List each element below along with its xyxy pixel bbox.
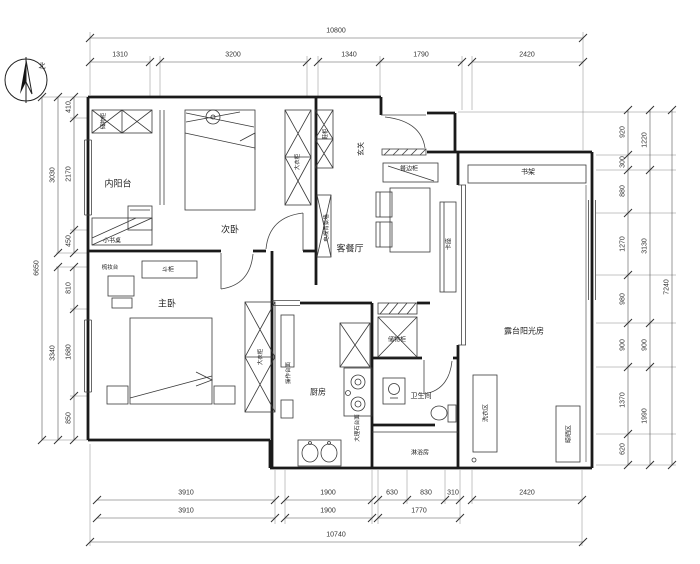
dim-left-total: 6650 <box>34 260 41 276</box>
dim-left-group-0: 3030 <box>50 167 57 183</box>
room-label-inner-balcony: 内阳台 <box>104 177 131 190</box>
room-label-living-dining: 客餐厅 <box>336 242 363 255</box>
bed-second-bedroom <box>185 110 255 210</box>
toilet <box>431 405 456 422</box>
dim-bottom-r1-3: 830 <box>420 490 432 497</box>
label-chest-drawers: 斗柜 <box>162 265 174 274</box>
dim-right-seg-6: 1370 <box>620 392 627 408</box>
dim-left-seg-3: 810 <box>66 282 73 294</box>
dim-right-seg-2: 880 <box>620 185 627 197</box>
dim-right-total: 7240 <box>664 279 671 295</box>
dim-top-seg-2: 1340 <box>341 52 357 59</box>
dim-right-group-0: 1220 <box>642 132 649 148</box>
kitchen-sink <box>298 440 341 466</box>
label-bench-seat: 卡座 <box>444 238 453 250</box>
dim-right-seg-7: 620 <box>620 443 627 455</box>
dim-bottom-r1-1: 1900 <box>320 490 336 497</box>
dim-bottom-r1-2: 630 <box>386 490 398 497</box>
label-storage-cabinet-kitchen: 储物柜 <box>388 335 406 344</box>
room-label-master-bedroom: 主卧 <box>158 297 176 310</box>
label-wardrobe-master: 大衣柜 <box>256 349 264 366</box>
dim-bottom-r1-5: 2420 <box>519 490 535 497</box>
label-work-counter: 操作台面 <box>284 362 292 384</box>
floor-plan-canvas: 北 10800 1310 3200 1340 1790 2420 3910 19… <box>0 0 700 564</box>
dim-left-group-1: 3340 <box>50 345 57 361</box>
dresser <box>108 276 134 308</box>
dining-table <box>376 188 430 252</box>
dim-right-group-2: 900 <box>642 339 649 351</box>
dim-top-seg-4: 2420 <box>519 52 535 59</box>
compass-north-label: 北 <box>39 61 46 71</box>
door-master-bedroom <box>221 253 253 289</box>
dim-right-group-1: 3130 <box>642 238 649 254</box>
dim-bottom-r1-0: 3910 <box>178 490 194 497</box>
storage-cabinet-kitchen <box>378 303 417 357</box>
room-label-bathroom: 卫生间 <box>411 391 432 401</box>
label-laundry-area: 洗衣区 <box>481 404 490 422</box>
room-label-shower-room: 淋浴房 <box>411 448 429 457</box>
label-wardrobe-second: 大衣柜 <box>293 154 301 171</box>
room-label-sunroom: 露台阳光房 <box>504 326 544 337</box>
label-small-desk: 小书桌 <box>103 236 121 245</box>
label-tv-wall: 电视背景墙 <box>322 214 330 242</box>
label-bookshelf: 书架 <box>521 167 535 177</box>
dim-left-seg-4: 1680 <box>66 344 73 360</box>
dim-bottom-r2-1: 1900 <box>320 508 336 515</box>
room-label-entry: 玄关 <box>356 142 366 156</box>
dim-right-seg-3: 1270 <box>620 236 627 252</box>
floor-plan-drawing <box>0 0 700 564</box>
dim-left-seg-0: 410 <box>66 101 73 113</box>
room-label-kitchen: 厨房 <box>310 387 326 398</box>
bathroom-sink <box>383 378 405 404</box>
dimension-lines <box>42 38 672 542</box>
door-bathroom <box>424 360 452 394</box>
dim-top-seg-3: 1790 <box>413 52 429 59</box>
label-dresser: 梳妆台 <box>102 263 119 271</box>
dim-bottom-r2-0: 3910 <box>178 508 194 515</box>
dim-left-seg-1: 2170 <box>66 166 73 182</box>
dim-left-seg-5: 850 <box>66 412 73 424</box>
dim-top-seg-1: 3200 <box>225 52 241 59</box>
label-drying-area: 晾晒区 <box>564 425 573 443</box>
dim-left-seg-2: 450 <box>66 235 73 247</box>
dim-right-seg-4: 980 <box>620 293 627 305</box>
small-desk <box>92 206 152 245</box>
label-shoe-cabinet: 鞋柜 <box>321 128 329 139</box>
label-marble-counter: 大理石台面 <box>353 414 361 442</box>
bed-master-bedroom <box>107 318 235 404</box>
door-entry <box>381 115 426 155</box>
dim-bottom-r1-4: 310 <box>447 490 459 497</box>
kitchen-island-cabinet <box>340 323 370 367</box>
dim-right-seg-5: 900 <box>620 339 627 351</box>
dim-right-seg-1: 300 <box>620 156 627 168</box>
label-sideboard: 餐边柜 <box>400 164 418 173</box>
dim-right-group-3: 1990 <box>642 408 649 424</box>
dim-bottom-total: 10740 <box>326 532 345 539</box>
dim-bottom-r2-2: 1770 <box>411 508 427 515</box>
dim-top-total: 10800 <box>326 28 345 35</box>
label-storage-cabinet-balcony: 储物柜 <box>99 113 107 130</box>
room-label-second-bedroom: 次卧 <box>221 223 239 236</box>
dim-right-seg-0: 920 <box>620 126 627 138</box>
door-second-bedroom <box>266 213 303 251</box>
dim-top-seg-0: 1310 <box>112 52 128 59</box>
gas-stove <box>344 368 372 416</box>
